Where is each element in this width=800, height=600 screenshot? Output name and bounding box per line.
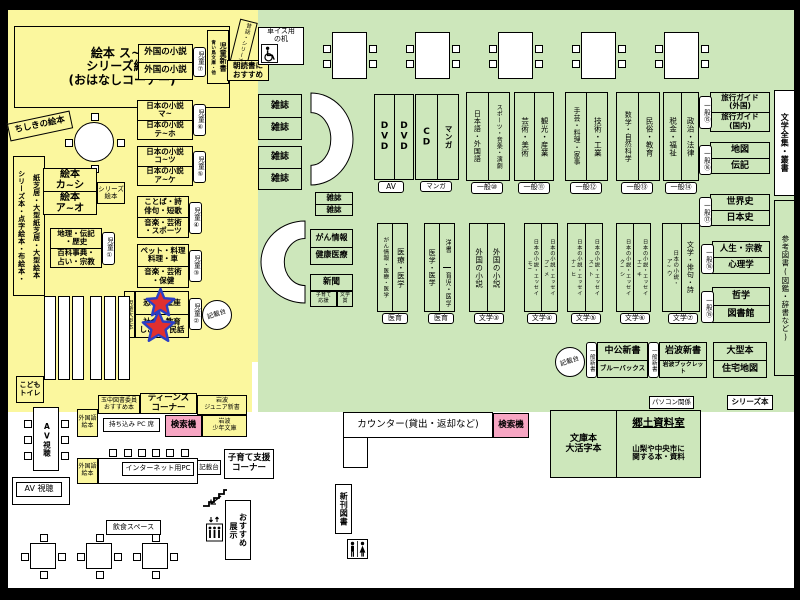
search-terminal-2-label: 検索機 [498,421,524,431]
dvd-shelf: DVDDVD [374,94,414,180]
chair [65,139,73,147]
general-10-badge: 一般⑩ [471,182,503,194]
nihon-shousetsu-ku-shelf-label: 日本の小説・エッセイ エ~キ [636,239,648,296]
chair [58,553,66,561]
general-12-badge-label: 一般⑫ [576,184,597,192]
kisaidai-circle-1: 記載台 [202,300,232,330]
general-13-shelf-label: 民俗・教育 [644,117,653,157]
nihon-shousetsu-mo-shelf: 日本の小説・エッセイ モ~日本の小説・エッセイ フ~メ [524,223,558,312]
chair [152,449,160,457]
gaikoku-shousetsu-jidou-shelf-label: 外国の小説 [144,66,187,76]
igaku-yousho-shelf-label: 医学・医学 [428,249,436,287]
iwanami-shinsho-shelf: 岩波新書岩波ブックレット [659,342,707,378]
jidou-4-badge: 児童④ [189,202,202,234]
kosodate-ouen-rack-label: 子育て 応援 [316,293,332,305]
general-12-shelf: 手芸・料理・家事技術・工業 [565,92,608,181]
star-marker-2 [140,309,177,346]
nihon-shousetsu-na-shelf-label: 日本の小説・エッセイ ス~ト [588,239,600,296]
magazine-rack-2-label: 雑誌 [271,174,289,184]
chair [21,553,29,561]
gan-jouhou-rack-label: 健康医療 [316,251,348,260]
iwanami-shinsho-shelf-label: 岩波新書 [665,346,701,356]
iwanami-shounen-bunko: 岩波 少年文庫 [202,415,247,437]
internet-pc-label: インターネット用PC [122,462,194,476]
magazine-rack-1: 雑誌雑誌 [258,94,302,140]
nihon-shousetsu-na-shelf: 日本の小説・エッセイ ナ~ヒ日本の小説・エッセイ ス~ト [567,223,603,312]
sankou-tosho-shelf-label: 参考図書(図鑑・辞書など) [780,235,789,342]
reading-table-4 [581,32,616,79]
bungaku-4-badge: 文学④ [527,313,557,324]
wheelchair-desk-label: 車イス用 の机 [267,28,295,44]
series-bon-rack-label: シリーズ本 [731,398,768,406]
chair [61,452,69,460]
shinkan-tosho-rack-label: 新刊図書 [339,492,348,526]
general-15-badge-label: 一般⑮ [702,102,710,123]
eating-table-3 [142,543,168,569]
bunkobon-shelf-label: 文庫本 大活字本 [565,434,601,454]
bunkobon-shelf: 文庫本 大活字本 [550,410,617,478]
general-12-badge: 一般⑫ [570,182,602,194]
general-15-badge: 一般⑮ [699,96,712,129]
gaikoku-shousetsu-jidou-shelf-label: 外国の小説 [144,48,187,58]
chiri-denki-shelf: 地理・伝記 ・歴史百科事典・ 占い・宗教 [50,228,102,268]
picture-book-rack-3 [72,296,84,380]
pasokon-kankei-rack-label: パソコン関係 [652,399,691,406]
chair [452,45,460,53]
kotoba-shi-shelf-label: 音楽・芸術 ・スポーツ [144,219,182,236]
jidou-2-badge: 児童② [189,298,202,330]
jidou-6-badge-label: 児童⑥ [196,109,204,132]
chiri-denki-shelf-label: 地理・伝記 ・歴史 [57,230,95,247]
kisaidai-circle-1-label: 記載台 [207,309,228,322]
ippan-shinsho-badge-2: 一般新書 [648,342,659,378]
search-terminal-2: 検索機 [493,413,529,438]
jidou-1-badge-label: 児童① [105,237,113,260]
ehon-ka-shi-shelf: 絵本 カ~シ絵本 ア~オ [43,168,97,215]
chuukou-shinsho-shelf-label: ブルーバックス [600,365,645,372]
general-11-badge-label: 一般⑪ [524,184,545,192]
general-14-shelf-label: 税金・福祉 [668,117,677,157]
chair [535,60,543,68]
jinsei-shuukyou-shelf-label: 人生・宗教 [720,245,763,255]
general-19-badge: 一般⑲ [701,291,714,323]
bungaku-3-badge: 文学③ [474,313,504,324]
gan-jouhou-iryou-shelf-label: 医療・医学 [396,248,405,288]
iwanami-shinsho-shelf-label: 岩波ブックレット [660,362,706,375]
bungaku-4-badge-label: 文学④ [532,315,552,323]
chair [323,60,331,68]
general-10-badge-label: 一般⑩ [477,184,497,192]
jidou-2-badge-label: 児童② [192,303,200,326]
iiku-badge-2-label: 医育 [434,315,448,323]
ippan-shinsho-badge-2-label: 一般新書 [650,348,656,372]
chair [535,45,543,53]
kyoudo-shiryou-sub: 山梨や中央市に 関する本・資料 [616,438,701,468]
internet-pc-label-label: インターネット用PC [125,465,190,473]
chiri-denki-shelf-label: 百科事典・ 占い・宗教 [57,249,95,266]
chair [406,45,414,53]
eating-space-label: 飲食スペース [106,520,161,535]
reading-table-1 [332,32,367,79]
kyoudo-shiryou-sub-label: 山梨や中央市に 関する本・資料 [632,445,685,462]
bungaku-zenshuu-shelf: 文学全集・叢書 [774,90,795,196]
chair [152,571,160,579]
nihon-shousetsu-ma-shelf-label: 日本の小説 マ~ [146,102,184,119]
gaikokugo-ehon-tab-1: 外国語 絵本 [77,409,98,437]
tetsugaku-shelf: 哲学図書館 [712,287,770,323]
mochikomi-pc-seat: 持ち込み PC 席 [103,418,160,432]
eating-space-label-label: 飲食スペース [113,524,154,532]
manga-badge: マンガ [420,181,452,192]
chuukou-shinsho-shelf-label: 中公新書 [604,346,640,356]
travel-guide-shelf-label: 旅行ガイド (国内) [721,113,759,130]
general-14-badge-label: 一般⑭ [671,184,692,192]
chair [166,449,174,457]
gaikokugo-ehon-tab-1-label: 外国語 絵本 [78,416,96,429]
nihon-shousetsu-ma-shelf: 日本の小説 マ~日本の小説 テ~ホ [137,100,193,140]
kosodate-ouen-rack: 子育て 応援 [310,291,337,307]
bungaku-6-badge: 文学⑥ [620,313,650,324]
pet-ryouri-shelf-label: ペット・料理 料理・車 [141,247,186,264]
chizu-denki-shelf-label: 地図 [731,145,749,155]
gan-jouhou-rack-label: がん情報 [316,234,348,243]
series-bon-rack: シリーズ本 [727,395,773,410]
travel-guide-shelf: 旅行ガイド (外国)旅行ガイド (国内) [710,92,770,132]
nihon-shousetsu-ku-shelf-label: 日本の小説・エッセイ ク~シ [619,239,631,296]
kotoba-shi-shelf-label: ことば・詩 俳句・短歌 [144,198,182,215]
bungaku-7-badge-label: 文学⑦ [673,315,693,323]
picture-book-rack-6 [118,296,130,380]
gaikoku-shousetsu-shelf-label: 外国の小説 [491,248,500,288]
jidou-3-badge-label: 児童③ [192,255,200,278]
sekaishi-shelf: 世界史日本史 [710,194,770,226]
jidou-shinsho-shelf-label: 青い鳥文庫・他 [210,40,215,75]
elevator-icon [206,516,223,542]
travel-guide-shelf-label: 旅行ガイド (外国) [721,94,759,111]
kodomo-toilet-label: こども トイレ [20,382,41,398]
general-11-shelf-label: 観光・産業 [539,117,548,157]
sankou-tosho-shelf: 参考図書(図鑑・辞書など) [774,200,795,376]
bungaku-7-badge: 文学⑦ [668,313,698,324]
tamachuu-osusume-label: 玉中図書委員 おすすめ本 [101,398,137,411]
dvd-shelf-label: DVD [379,121,390,153]
chair [323,45,331,53]
general-13-badge: 一般⑬ [621,182,653,194]
chair [572,45,580,53]
wheelchair-icon [261,44,278,63]
jidou-5-badge-label: 児童⑤ [196,156,204,179]
chair [77,553,85,561]
igaku-yousho-shelf: 医学・医学洋書育児・医学 [424,223,455,312]
magazine-rack-2: 雑誌雑誌 [258,146,302,190]
chair [489,45,497,53]
chair [452,60,460,68]
ippan-shinsho-badge-1-label: 一般新書 [588,348,594,372]
iiku-badge-1-label: 医育 [388,315,402,323]
general-18-badge-label: 一般⑱ [704,249,712,270]
nihon-shousetsu-mo-shelf-label: 日本の小説・エッセイ フ~メ [543,239,555,296]
jidou-3-badge: 児童③ [189,250,202,282]
av-shichou-label-label: AV 視聴 [25,485,54,494]
bungakushou-rack-label: 文学賞 [338,293,352,304]
chair [114,553,122,561]
sekaishi-shelf-label: 日本史 [726,213,753,223]
bungaku-6-badge-label: 文学⑥ [625,315,645,323]
igaku-yousho-shelf-label: 育児・医学 [443,272,451,307]
general-13-badge-label: 一般⑬ [627,184,648,192]
picture-book-rack-2 [58,296,70,380]
cd-manga-shelf-label: マンガ [443,125,452,149]
reading-nook-2 [260,220,306,304]
bungaku-3-badge-label: 文学③ [479,315,499,323]
chair [618,45,626,53]
chair [152,534,160,542]
osusume-tenji-label: おすすめ 展示 [229,513,248,547]
jidou-4-badge-label: 児童④ [192,207,200,230]
oogatabon-shelf-label: 大型本 [726,346,753,356]
general-19-badge-label: 一般⑲ [704,297,712,318]
chair [133,553,141,561]
iiku-badge-2: 医育 [428,313,454,324]
search-terminal-1-label: 検索機 [171,421,197,431]
chair [618,60,626,68]
oogatabon-shelf: 大型本住宅地図 [713,342,767,378]
manga-badge-label: マンガ [426,183,446,190]
nihon-shousetsu-a-shelf-label: 日本の小説・ ア~ウ [665,250,678,286]
jidou-shinsho-shelf-label: 児童新書 [219,42,227,72]
bungaku-5-badge-label: 文学⑤ [576,315,596,323]
kyoudo-shiryou-title-label: 郷土資料室 [632,418,685,430]
chizu-denki-shelf-label: 伝記 [731,161,749,171]
kodomo-toilet: こども トイレ [16,376,44,403]
cd-manga-shelf: CDマンガ [415,94,459,180]
magazine-rack-2-label: 雑誌 [271,152,289,162]
teens-corner-label: ティーンズ コーナー [148,394,189,413]
reading-table-3 [498,32,533,79]
nihon-shousetsu-ko-shelf-label: 日本の小説 コ~ツ [146,148,184,165]
tetsugaku-shelf-label: 図書館 [727,309,754,319]
chuukou-shinsho-shelf: 中公新書ブルーバックス [597,342,648,378]
oogatabon-shelf-label: 住宅地図 [722,364,758,374]
bungaku-zenshuu-shelf-label: 文学全集・叢書 [780,113,789,173]
nihon-shousetsu-na-shelf-label: 日本の小説・エッセイ ナ~ヒ [570,239,582,296]
igaku-yousho-shelf-label: 洋書 [443,239,451,253]
eating-table-1 [30,543,56,569]
search-terminal-1: 検索機 [165,415,202,437]
bungaku-5-badge: 文学⑤ [571,313,601,324]
chair [701,60,709,68]
chair [655,45,663,53]
chair [61,436,69,444]
chair [406,60,414,68]
shinkan-tosho-rack: 新刊図書 [335,484,352,534]
magazine-rack-3-label: 雑誌 [327,194,342,202]
chair [489,60,497,68]
mochikomi-pc-seat-label: 持ち込み PC 席 [109,421,154,428]
picture-book-rack-4 [90,296,102,380]
series-tenji-nuno-ehon-shelf-label: 紙芝居・大型紙芝居・大型絵本 [32,174,40,279]
kisaidai-circle-2: 記載台 [555,347,585,377]
general-12-shelf-label: 手芸・料理・家事 [572,107,580,165]
osusume-tenji: おすすめ 展示 [225,500,251,560]
jidou-7-badge: 児童⑦ [193,47,206,77]
kisaidai-2: 記載台 [197,460,221,475]
jidou-1-badge: 児童① [102,232,115,265]
av-shichou-label: AV 視聴 [16,482,62,497]
iwanami-junior-shinsho-label: 岩波 ジュニア新書 [204,398,240,411]
av-badge-label: AV [386,183,396,191]
jidou-6-badge: 児童⑥ [193,104,206,136]
ehon-ka-shi-shelf-label: 絵本 ア~オ [56,192,84,214]
jidou-7-badge-label: 児童⑦ [196,51,204,74]
chair [24,436,32,444]
tetsugaku-shelf-label: 哲学 [732,291,750,301]
av-shichou-table: AV視聴 [33,407,59,471]
chair [572,60,580,68]
jidou-shinsho-shelf: 青い鳥文庫・他児童新書 [207,30,229,84]
nihon-shousetsu-ku-shelf: 日本の小説・エッセイ ク~シ日本の小説・エッセイ エ~キ [616,223,651,312]
nihon-shousetsu-a-shelf: 日本の小説・ ア~ウ文学・俳句・詩 [662,223,700,312]
magazine-rack-3: 雑誌雑誌 [315,192,353,216]
toilet-icon [347,539,368,559]
magazine-rack-1-label: 雑誌 [271,101,289,111]
av-shichou-table-label: AV視聴 [42,422,51,457]
chair [61,420,69,428]
chizu-denki-shelf: 地図伝記 [710,142,770,174]
series-tenji-nuno-ehon-shelf: シリーズ本・点字絵本・布絵本・紙芝居・大型紙芝居・大型絵本 [13,156,45,296]
iiku-badge-1: 医育 [382,313,408,324]
chair [40,534,48,542]
magazine-rack-3-label: 雑誌 [327,206,342,214]
gaikokugo-ehon-tab-2-label: 外国語 絵本 [78,464,96,477]
kotoba-shi-shelf: ことば・詩 俳句・短歌音楽・芸術 ・スポーツ [137,196,189,238]
chair [96,571,104,579]
nihon-shousetsu-a-shelf-label: 文学・俳句・詩 [686,241,694,294]
general-11-badge: 一般⑪ [518,182,550,194]
chair [40,571,48,579]
cd-manga-shelf-label: CD [421,127,432,148]
kyoudo-shiryou-title: 郷土資料室 [616,416,701,432]
series-ehon-tab: シリーズ 絵本 [97,182,125,204]
shinbun-rack: 新聞 [310,274,353,291]
general-13-shelf: 数学・自然科学民俗・教育 [616,92,660,181]
general-10-shelf-label: 日本語・外国語 [473,110,481,163]
general-13-shelf-label: 数学・自然科学 [623,111,631,162]
picture-book-rack-5 [104,296,116,380]
general-16-badge: 一般⑯ [699,145,712,175]
dvd-shelf-label: DVD [398,121,409,153]
general-14-shelf-label: 政治・法律 [685,117,694,157]
chair [655,60,663,68]
counter-desk-leg [343,437,368,468]
av-badge: AV [378,181,404,193]
chair [369,60,377,68]
gan-jouhou-rack: がん情報健康医療 [310,229,353,265]
shinbun-rack-label: 新聞 [323,278,340,288]
gaikokugo-ehon-tab-2: 外国語 絵本 [77,458,98,484]
general-12-shelf-label: 技術・工業 [593,117,602,157]
magazine-rack-1-label: 雑誌 [271,123,289,133]
reading-table-2 [415,32,450,79]
counter-desk-label: カウンター(貸出・返却など) [357,420,478,431]
general-16-badge-label: 一般⑯ [702,150,710,171]
round-table [74,122,114,162]
kisaidai-circle-2-label: 記載台 [560,356,581,369]
chair [24,420,32,428]
gaikoku-shousetsu-shelf: 外国の小説外国の小説 [469,223,505,312]
bungakushou-rack: 文学賞 [337,291,353,307]
nihon-shousetsu-mo-shelf-label: 日本の小説・エッセイ モ~ [527,239,539,296]
library-floor-map: 玉穂生涯学習館 館内図 本・雑誌・紙芝居は 20 冊まで CD・DVD は5点ま… [0,0,800,600]
general-18-badge: 一般⑱ [701,244,714,274]
chair [170,553,178,561]
chair [181,449,189,457]
kosodate-shien-corner: 子育て支援 コーナー [224,449,274,479]
jinsei-shuukyou-shelf: 人生・宗教心理学 [712,241,770,274]
series-ehon-tab-label: シリーズ 絵本 [98,186,124,201]
counter-desk: カウンター(貸出・返却など) [343,412,493,438]
general-11-shelf: 芸術・美術観光・産業 [514,92,554,181]
jinsei-shuukyou-shelf-label: 心理学 [728,261,754,271]
general-10-shelf: 日本語・外国語スポーツ・音楽・演劇 [466,92,510,181]
chair [24,452,32,460]
general-14-badge: 一般⑭ [665,182,697,194]
general-11-shelf-label: 芸術・美術 [520,117,529,157]
chair [369,45,377,53]
pet-ryouri-shelf: ペット・料理 料理・車音楽・芸術 ・保健 [137,244,189,288]
general-17-badge: 一般⑰ [699,197,712,227]
chair [124,449,132,457]
nihon-shousetsu-ko-shelf: 日本の小説 コ~ツ日本の小説 ア~ケ [137,146,193,186]
pasokon-kankei-rack: パソコン関係 [649,396,694,409]
jidou-5-badge: 児童⑤ [193,151,206,183]
chair [109,449,117,457]
chair [701,45,709,53]
chair [138,449,146,457]
kisaidai-2-label: 記載台 [199,464,219,471]
chair [91,113,99,121]
iwanami-junior-shinsho: 岩波 ジュニア新書 [197,395,247,415]
picture-book-rack-1 [44,296,56,380]
chair [117,139,125,147]
reading-nook-1 [310,92,354,186]
general-10-shelf-label: スポーツ・音楽・演劇 [495,104,502,169]
general-14-shelf: 税金・福祉政治・法律 [663,92,699,181]
pet-ryouri-shelf-label: 音楽・芸術 ・保健 [144,268,182,285]
reading-table-5 [664,32,699,79]
eating-table-2 [86,543,112,569]
gaikoku-shousetsu-shelf-label: 外国の小説 [474,248,483,288]
nihon-shousetsu-ko-shelf-label: 日本の小説 ア~ケ [146,167,184,184]
teens-corner: ティーンズ コーナー [140,393,197,414]
kosodate-shien-corner-label: 子育て支援 コーナー [228,454,271,473]
gan-jouhou-iryou-shelf-label: がん情報・医療・医学 [382,237,389,298]
series-tenji-nuno-ehon-shelf-label: シリーズ本・点字絵本・布絵本・ [17,170,25,283]
general-17-badge-label: 一般⑰ [702,202,710,223]
sekaishi-shelf-label: 世界史 [726,197,753,207]
tamachuu-osusume: 玉中図書委員 おすすめ本 [98,395,140,414]
nihon-shousetsu-ma-shelf-label: 日本の小説 テ~ホ [146,121,184,138]
gan-jouhou-iryou-shelf: がん情報・医療・医学医療・医学 [377,223,408,312]
iwanami-shounen-bunko-label: 岩波 少年文庫 [212,419,236,432]
ippan-shinsho-badge-1: 一般新書 [586,342,597,378]
gaikoku-shousetsu-jidou-shelf: 外国の小説外国の小説 [138,44,193,80]
ehon-ka-shi-shelf-label: 絵本 カ~シ [56,169,84,191]
chair [96,534,104,542]
